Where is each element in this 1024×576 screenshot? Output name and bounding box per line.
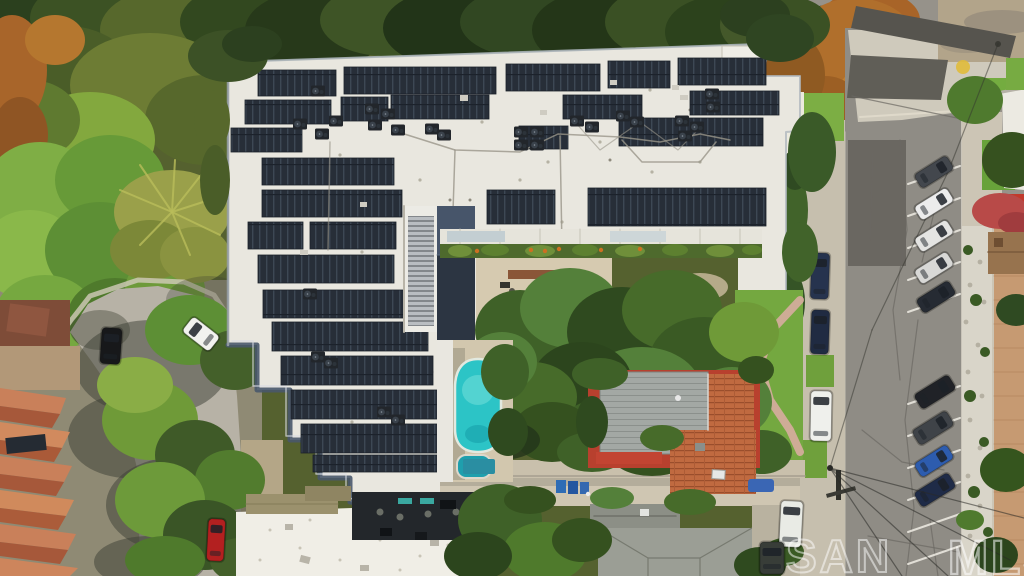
watermark-text-left: SAN	[786, 530, 892, 576]
car	[809, 308, 832, 356]
hvac-unit	[706, 102, 720, 113]
hvac-unit	[425, 124, 439, 135]
aerial-photo-canvas: SAN MLS	[0, 0, 1024, 576]
watermark-text-right: MLS	[948, 532, 1024, 576]
hvac-unit	[437, 130, 451, 141]
hvac-unit	[303, 289, 317, 300]
hvac-unit	[630, 117, 644, 128]
aerial-property-photo: SAN MLS	[0, 0, 1024, 576]
hvac-unit	[570, 116, 584, 127]
hvac-unit	[311, 86, 325, 97]
hvac-unit	[585, 122, 599, 133]
hvac-unit	[514, 127, 528, 138]
hvac-unit	[365, 104, 379, 115]
hvac-unit	[324, 358, 338, 369]
hvac-unit	[311, 352, 325, 363]
car	[98, 326, 124, 367]
hvac-unit	[616, 111, 630, 122]
hvac-unit	[329, 116, 343, 127]
hvac-unit	[530, 140, 544, 151]
hvac-unit	[391, 415, 405, 426]
car	[759, 541, 786, 576]
hvac-unit	[381, 109, 395, 120]
hvac-unit	[368, 120, 382, 131]
hvac-unit	[391, 125, 405, 136]
hvac-unit	[675, 116, 689, 127]
car	[205, 517, 227, 563]
stair-tower	[404, 206, 475, 347]
hvac-unit	[690, 122, 704, 133]
hvac-unit	[530, 127, 544, 138]
hvac-unit	[377, 407, 391, 418]
hvac-unit	[705, 89, 719, 100]
hvac-unit	[293, 119, 307, 130]
scene-shapes	[0, 0, 1024, 576]
hvac-unit	[514, 140, 528, 151]
hvac-unit	[315, 129, 329, 140]
hvac-unit	[678, 131, 692, 142]
car	[809, 389, 834, 442]
